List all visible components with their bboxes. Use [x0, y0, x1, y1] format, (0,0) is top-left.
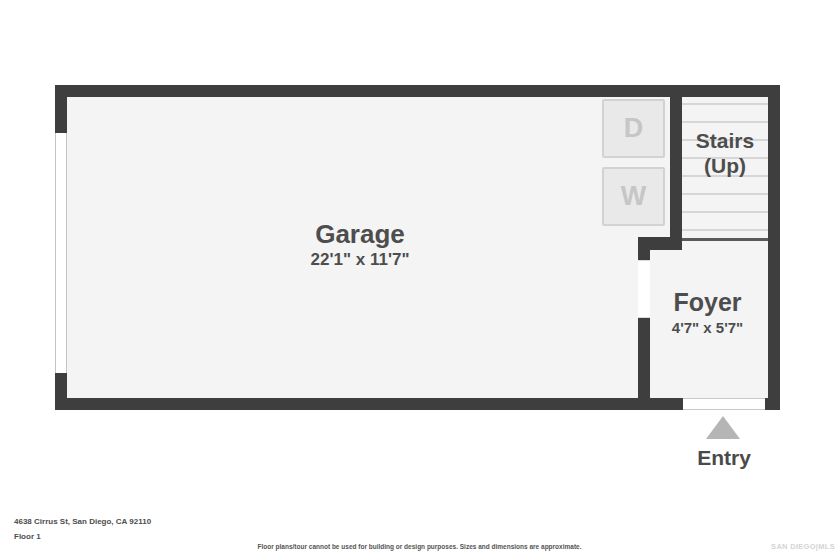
entry-door-opening: [683, 398, 765, 410]
stair-tread: [682, 103, 768, 105]
stairs-bottom-edge: [682, 238, 768, 241]
wall-top: [55, 85, 780, 97]
garage-door-opening: [55, 133, 67, 373]
wall-foyer-left-stub: [638, 250, 650, 260]
washer-label: W: [621, 181, 646, 212]
wall-foyer-jog: [638, 237, 682, 250]
entry-label: Entry: [672, 446, 776, 470]
foyer-dimensions: 4'7" x 5'7": [645, 318, 770, 338]
floor-plan-page: D W Garage 22'1" x 11'7" Stairs (Up) Foy…: [0, 0, 839, 560]
foyer-label: Foyer 4'7" x 5'7": [645, 288, 770, 338]
dryer-box: D: [602, 99, 665, 158]
stair-tread: [682, 193, 768, 195]
property-address: 4638 Cirrus St, San Diego, CA 92110: [14, 517, 151, 526]
entry-arrow-icon: [706, 416, 740, 439]
foyer-name: Foyer: [645, 288, 770, 316]
wall-bottom-left: [55, 398, 683, 410]
garage-dimensions: 22'1" x 11'7": [190, 250, 530, 270]
stairs-label: Stairs (Up): [682, 128, 768, 178]
stair-tread: [682, 211, 768, 213]
stairs-label-line1: Stairs: [682, 128, 768, 153]
floor-number: Floor 1: [14, 532, 41, 541]
garage-label: Garage 22'1" x 11'7": [190, 220, 530, 270]
stairs-label-line2: (Up): [682, 153, 768, 178]
wall-bottom-right: [765, 398, 780, 410]
wall-stairs-divider: [670, 97, 682, 243]
wall-left-lower: [55, 373, 67, 410]
wall-right: [768, 85, 780, 410]
stair-tread: [682, 121, 768, 123]
mls-watermark: SAN DIEGO|MLS: [690, 542, 835, 551]
garage-name: Garage: [190, 220, 530, 248]
stair-tread: [682, 229, 768, 231]
wall-left-upper: [55, 85, 67, 133]
dryer-label: D: [624, 113, 644, 144]
washer-box: W: [602, 167, 665, 226]
